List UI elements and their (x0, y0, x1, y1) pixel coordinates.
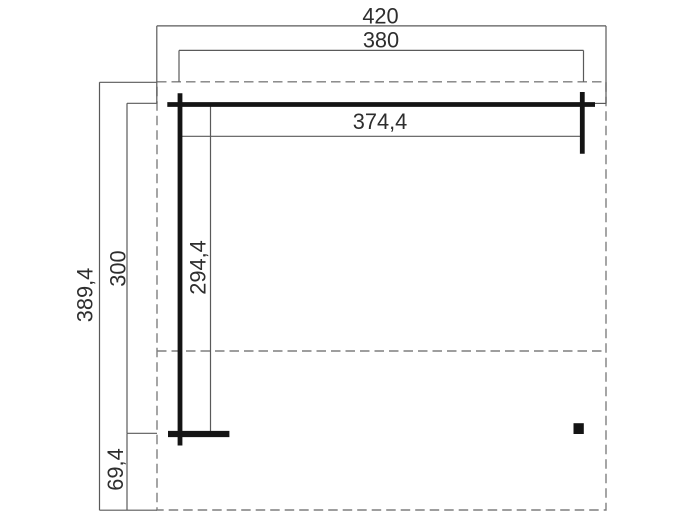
svg-text:420: 420 (362, 4, 398, 29)
svg-text:69,4: 69,4 (103, 448, 128, 490)
svg-text:374,4: 374,4 (353, 109, 408, 134)
svg-text:300: 300 (106, 250, 131, 286)
svg-text:380: 380 (363, 27, 399, 52)
svg-text:389,4: 389,4 (73, 268, 98, 323)
svg-text:294,4: 294,4 (186, 240, 211, 295)
